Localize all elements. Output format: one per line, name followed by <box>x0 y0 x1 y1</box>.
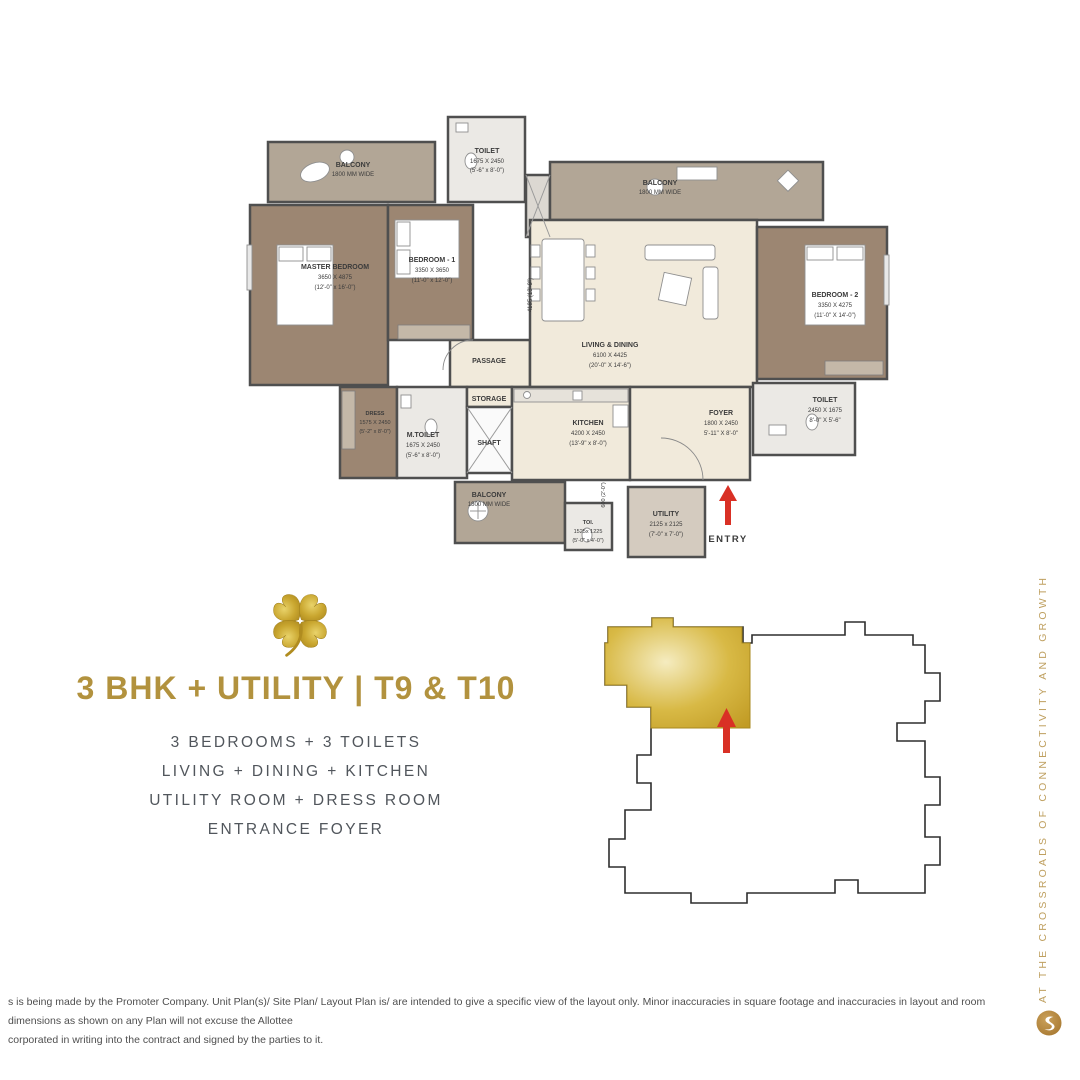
room-dim: 1800 X 2450 <box>704 421 739 427</box>
room-dim: 1525x 1225 <box>574 529 603 535</box>
room-dim: (13'-9" x 8'-0") <box>569 441 607 447</box>
room-label: BEDROOM - 2 <box>812 292 859 299</box>
room-dim: (12'-0" x 16'-0") <box>315 285 356 291</box>
disclaimer-line: s is being made by the Promoter Company.… <box>8 993 998 1031</box>
room-dim: (11'-0" x 12'-0") <box>412 278 452 284</box>
room-dim: 1800 MM WIDE <box>332 172 374 178</box>
room-label: PASSAGE <box>472 358 506 365</box>
room-label: BALCONY <box>643 180 678 187</box>
feature-list: 3 BEDROOMS + 3 TOILETS LIVING + DINING +… <box>56 728 536 844</box>
room-dim: (7'-0" x 7'-0") <box>649 532 683 538</box>
room-dim: 2125 x 2125 <box>649 522 683 528</box>
brand-logo-icon <box>1035 1009 1063 1037</box>
room-label: TOILET <box>813 397 838 404</box>
room-dim: (5'-2" x 8'-0") <box>359 429 391 435</box>
feature-item: UTILITY ROOM + DRESS ROOM <box>56 786 536 815</box>
room-label: LIVING & DINING <box>582 342 639 349</box>
room-label: BALCONY <box>336 162 371 169</box>
room-label: TOILET <box>475 148 500 155</box>
dimension-label: 4185 (13'-9") <box>528 278 534 312</box>
room-label: STORAGE <box>472 396 507 403</box>
room-label: BALCONY <box>472 492 507 499</box>
clover-icon <box>261 579 339 661</box>
room-dim: 8'-0" X 5'-6" <box>809 418 840 424</box>
dimension-label: 600 (2'-0") <box>601 482 607 507</box>
room-label: UTILITY <box>653 511 680 518</box>
side-tagline: AT THE CROSSROADS OF CONNECTIVITY AND GR… <box>1037 643 1049 1003</box>
room-dim: (20'-0" X 14'-6") <box>589 363 631 369</box>
room-dim: 3650 X 4875 <box>318 275 353 281</box>
room-dim: 2450 X 1675 <box>808 408 843 414</box>
feature-item: 3 BEDROOMS + 3 TOILETS <box>56 728 536 757</box>
feature-item: LIVING + DINING + KITCHEN <box>56 757 536 786</box>
disclaimer-line: corporated in writing into the contract … <box>8 1031 998 1050</box>
room-label: BEDROOM - 1 <box>409 257 456 264</box>
room-label: DRESS <box>366 411 385 417</box>
room-dim: 3350 X 4275 <box>818 303 853 309</box>
room-dim: 1675 X 2450 <box>470 159 505 165</box>
brochure-page: BALCONY 1800 MM WIDE TOILET 1675 X 2450 … <box>0 0 1080 1080</box>
room-label: SHAFT <box>477 440 501 447</box>
room-dim: (5'-6" x 8'-0") <box>406 453 440 459</box>
key-plan <box>595 605 955 905</box>
disclaimer: s is being made by the Promoter Company.… <box>8 993 998 1050</box>
room-label: FOYER <box>709 410 733 417</box>
floor-plan: BALCONY 1800 MM WIDE TOILET 1675 X 2450 … <box>225 95 905 575</box>
room-dim: 1800 MM WIDE <box>639 190 681 196</box>
room-dim: (11'-0" X 14'-0") <box>814 313 855 319</box>
entry-arrow-icon <box>719 485 737 525</box>
room-dim: (5'-0" x 4'-0") <box>572 538 604 544</box>
room-label: MASTER BEDROOM <box>301 264 369 271</box>
entry-label: ENTRY <box>708 534 747 545</box>
room-label: TOI. <box>583 520 594 526</box>
room-label: KITCHEN <box>572 420 603 427</box>
room-dim: 3350 X 3650 <box>415 268 450 274</box>
room-dim: 1675 X 2450 <box>406 443 441 449</box>
room-dim: 1575 X 2450 <box>359 420 390 426</box>
room-dim: (5'-6" x 8'-0") <box>470 168 504 174</box>
room-dim: 1800 MM WIDE <box>468 502 510 508</box>
room-label: M.TOILET <box>407 432 440 439</box>
page-title: 3 BHK + UTILITY | T9 & T10 <box>56 670 536 707</box>
room-dim: 6100 X 4425 <box>593 353 628 359</box>
room-dim: 4200 X 2450 <box>571 431 606 437</box>
feature-item: ENTRANCE FOYER <box>56 815 536 844</box>
room-dim: 5'-11" X 8'-0" <box>704 431 738 437</box>
